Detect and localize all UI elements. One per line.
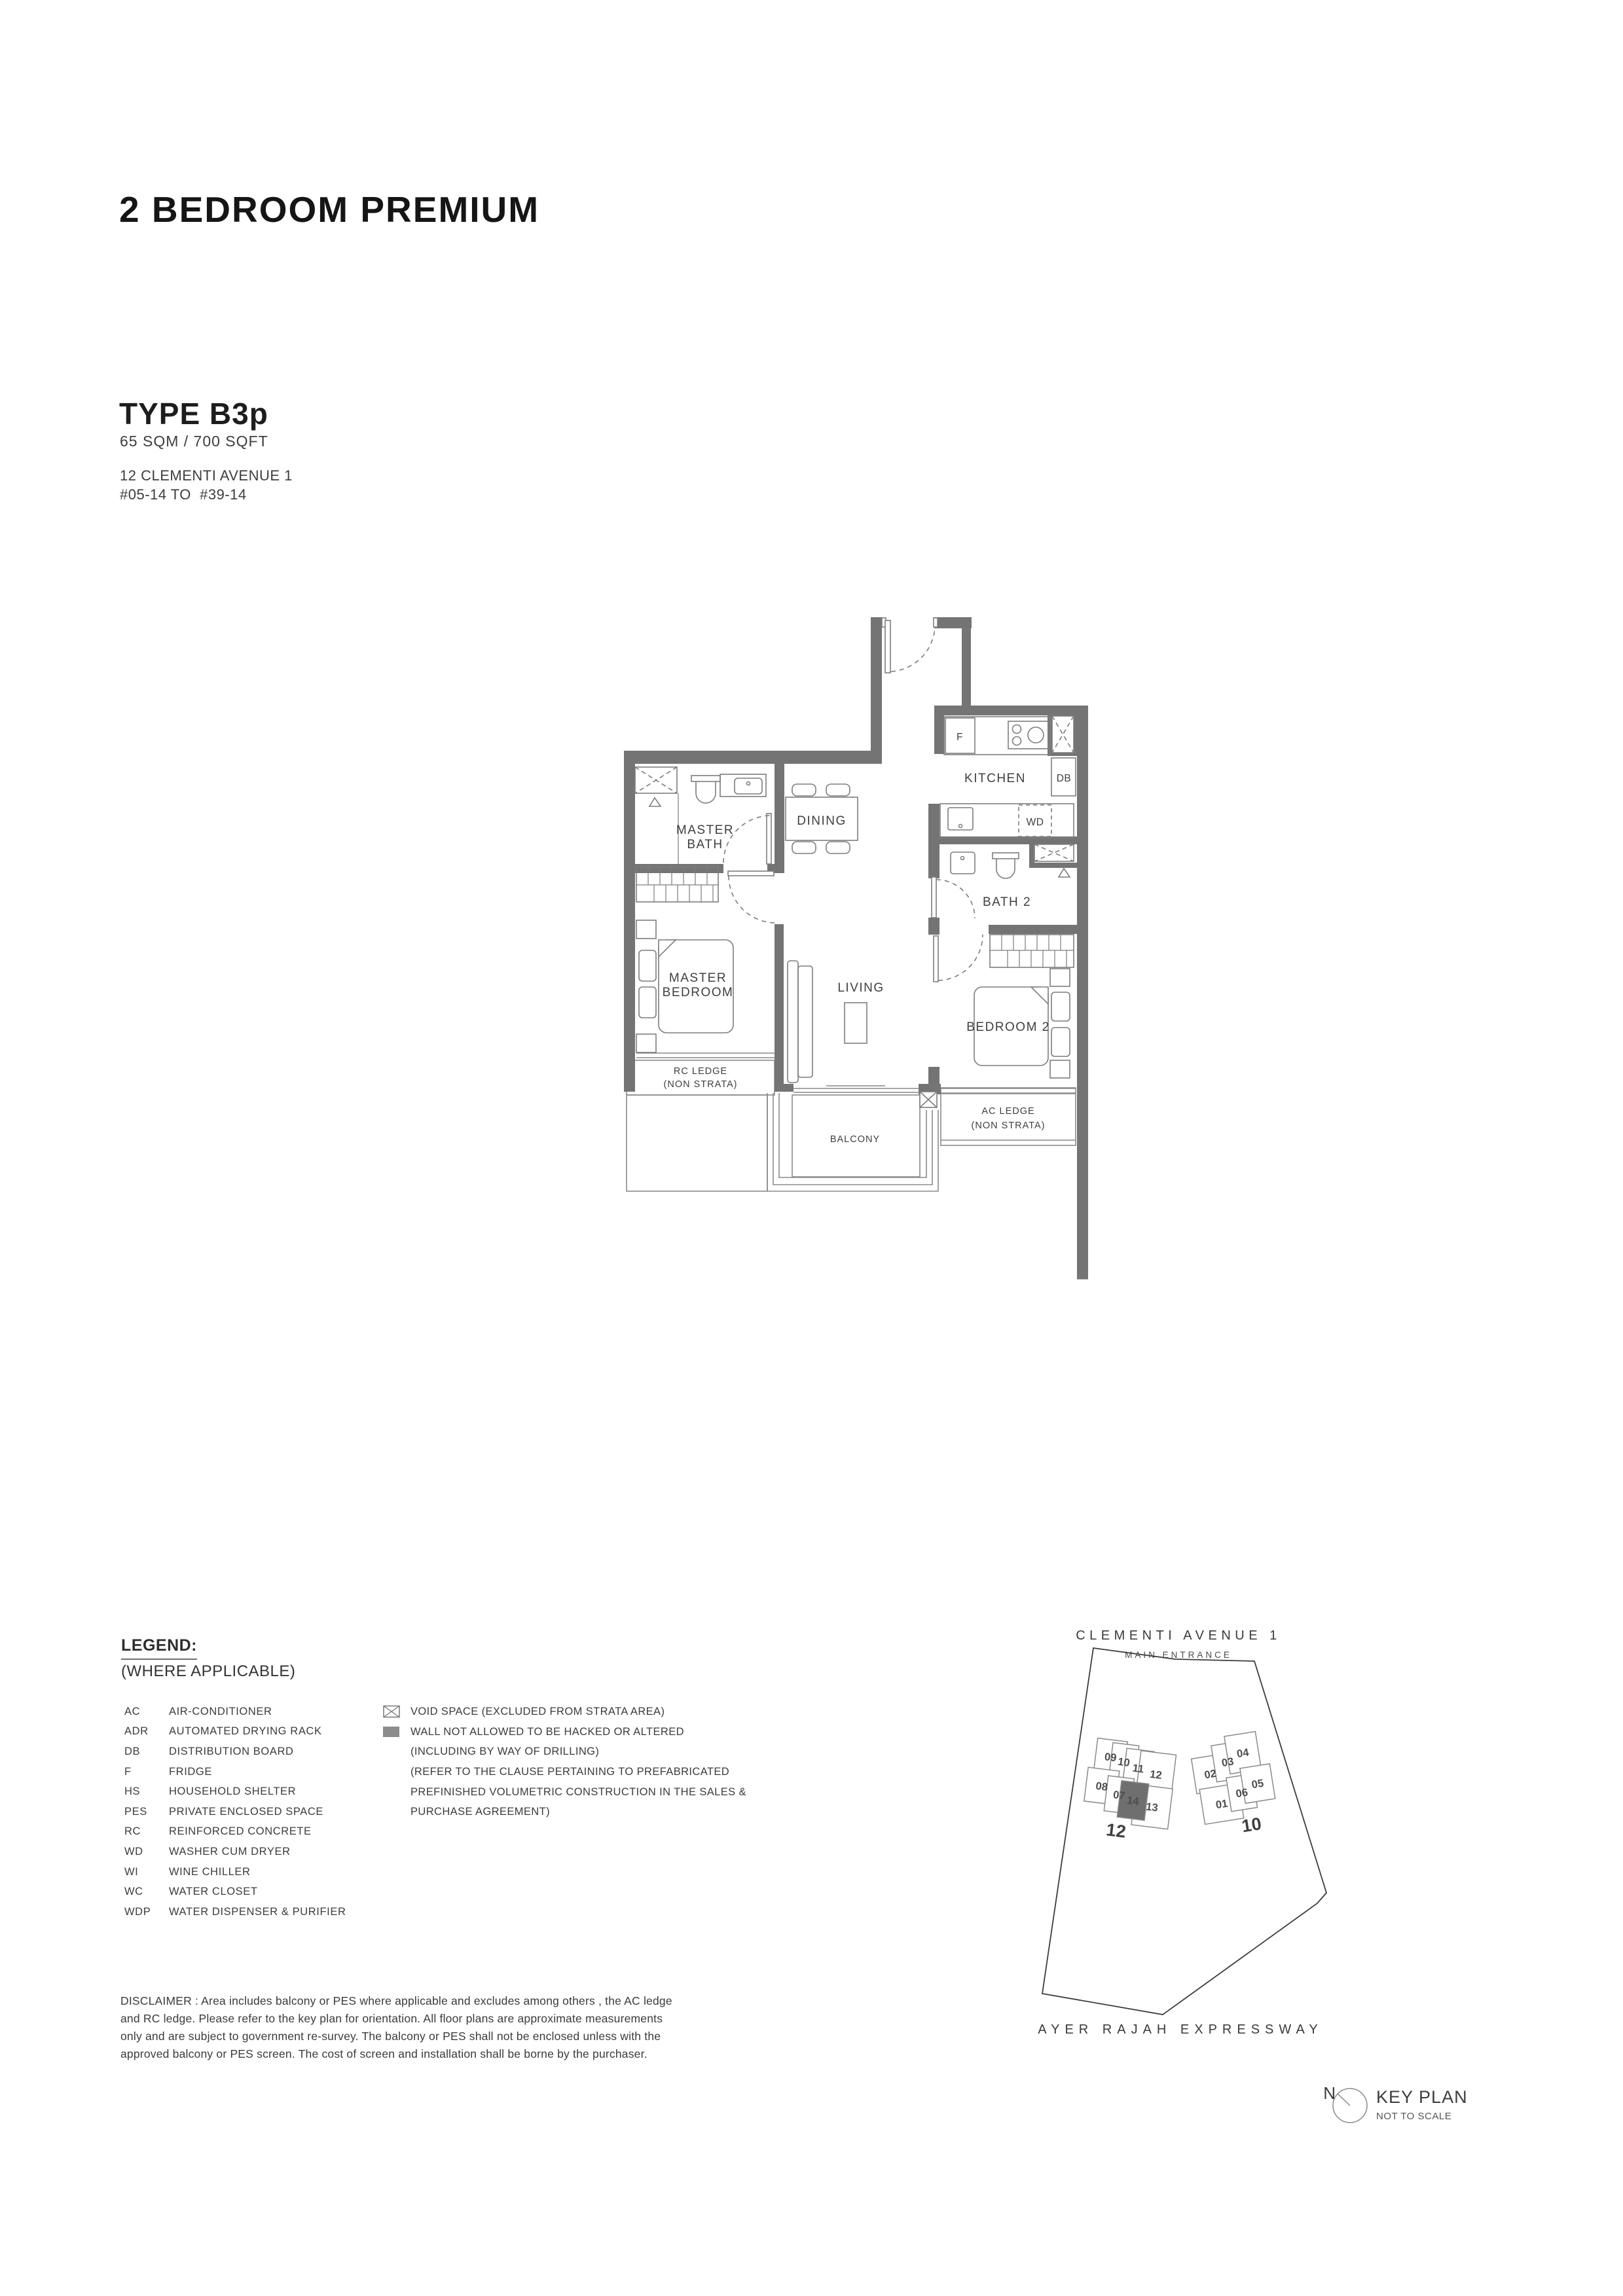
ac-ledge-area <box>941 1088 1076 1145</box>
unit-label: 13 <box>1145 1801 1158 1814</box>
door-swing <box>936 880 975 918</box>
label-balcony: BALCONY <box>830 1134 880 1145</box>
disclaimer-line: approved balcony or PES screen. The cost… <box>120 2045 841 2063</box>
wall-bedroom2-top <box>989 925 1077 934</box>
legend-label: REINFORCED CONCRETE <box>169 1825 312 1838</box>
road-label-bottom: AYER RAJAH EXPRESSWAY <box>1038 2022 1322 2037</box>
bedside-table <box>1050 969 1070 986</box>
legend-label: DISTRIBUTION BOARD <box>169 1746 293 1758</box>
living-furniture <box>788 961 867 1083</box>
legend-item: ADRAUTOMATED DRYING RACK <box>124 1722 373 1742</box>
bedside-table <box>636 1034 656 1052</box>
wall-foyer-left <box>871 617 882 764</box>
legend-abbr: WD <box>124 1846 169 1858</box>
pillow <box>1051 1028 1070 1056</box>
legend-item: PESPRIVATE ENCLOSED SPACE <box>124 1802 373 1822</box>
unit-address: 12 CLEMENTI AVENUE 1#05-14 TO #39-14 <box>120 466 293 504</box>
void-acledge <box>920 1092 937 1107</box>
unit-label: 02 <box>1203 1768 1217 1782</box>
keyplan-subtitle: NOT TO SCALE <box>1376 2111 1451 2122</box>
legend-label: AIR-CONDITIONER <box>169 1706 272 1718</box>
legend-abbr: AC <box>124 1706 169 1718</box>
unit-label: 01 <box>1215 1798 1229 1812</box>
wall-shaft-bottom <box>1029 863 1077 868</box>
unit-type-label: TYPE B3p <box>119 396 268 431</box>
room-labels: KITCHEN DB F WD DINING MASTER BATH BATH … <box>663 732 1072 1145</box>
unit-label: 07 <box>1112 1789 1125 1802</box>
unit-label: 12 <box>1149 1768 1162 1782</box>
door-leaf <box>932 877 936 918</box>
coffee-table <box>845 1003 867 1043</box>
legend-item: WIWINE CHILLER <box>124 1862 373 1882</box>
legend-abbr: RC <box>124 1825 169 1838</box>
unit-label: 08 <box>1095 1780 1108 1793</box>
legend-abbr: WC <box>124 1886 169 1898</box>
rc-ledge-extension <box>627 1095 767 1191</box>
wall-right-outer <box>1077 706 1088 1279</box>
legend-abbr: HS <box>124 1785 169 1798</box>
label-bedroom2: BEDROOM 2 <box>966 1020 1050 1034</box>
wall-bath-dining <box>775 751 784 865</box>
block-12: 09 10 11 12 08 07 14 13 12 <box>1080 1738 1178 1847</box>
legend-item: ACAIR-CONDITIONER <box>124 1702 373 1722</box>
toilet-icon <box>996 859 1015 878</box>
legend-label: WATER DISPENSER & PURIFIER <box>169 1906 346 1918</box>
wall-masterbed-right <box>775 924 784 1086</box>
chair <box>792 842 816 853</box>
legend-item: WDWASHER CUM DRYER <box>124 1842 373 1862</box>
door-leaf <box>767 814 771 864</box>
block-10: 02 03 04 01 06 05 10 <box>1189 1730 1281 1842</box>
legend-item: FFRIDGE <box>124 1762 373 1782</box>
legend-symbol-wall-cont: (REFER TO THE CLAUSE PERTAINING TO PREFA… <box>383 1762 802 1782</box>
legend-symbol-wall-cont: PURCHASE AGREEMENT) <box>383 1802 802 1822</box>
chair <box>792 784 816 796</box>
bedroom2-door <box>934 935 983 982</box>
unit-label: 09 <box>1104 1751 1117 1764</box>
chair <box>826 784 850 796</box>
key-plan: CLEMENTI AVENUE 1 MAIN ENTRANCE 09 10 11… <box>1021 1597 1388 2042</box>
masterbedroom-door <box>728 871 776 923</box>
address-line2: #05-14 TO #39-14 <box>120 486 247 503</box>
keyplan-title: KEY PLAN <box>1376 2087 1468 2107</box>
label-rcledge-1: RC LEDGE <box>674 1066 727 1077</box>
legend-label: WINE CHILLER <box>169 1866 251 1878</box>
legend-item: RCREINFORCED CONCRETE <box>124 1822 373 1842</box>
legend-label: HOUSEHOLD SHELTER <box>169 1785 296 1798</box>
legend-abbr: F <box>124 1766 169 1778</box>
sofa-seat <box>798 966 812 1077</box>
unit-label: 04 <box>1236 1746 1250 1760</box>
legend-abbr: WI <box>124 1866 169 1878</box>
keyplan-caption: N KEY PLAN NOT TO SCALE <box>1303 2075 1499 2134</box>
legend-label: PRIVATE ENCLOSED SPACE <box>169 1806 323 1818</box>
sink-icon <box>951 852 975 874</box>
label-rcledge-2: (NON STRATA) <box>664 1079 738 1090</box>
unit-label-highlighted: 14 <box>1126 1795 1140 1808</box>
door-swing <box>723 816 771 863</box>
label-dining: DINING <box>797 814 847 828</box>
door-leaf <box>885 620 890 673</box>
label-masterbedroom-2: BEDROOM <box>663 986 734 999</box>
sink-icon <box>735 778 762 794</box>
toilet-icon <box>696 781 716 803</box>
legend-label: FRIDGE <box>169 1766 212 1778</box>
sofa-back <box>788 961 798 1083</box>
site-boundary <box>1042 1648 1326 2015</box>
disclaimer-line: only and are subject to government re-su… <box>120 2028 841 2045</box>
wall-west-top <box>624 751 882 764</box>
hack-wall-label-2: (INCLUDING BY WAY OF DRILLING) <box>410 1746 599 1758</box>
bedside-table <box>636 920 656 939</box>
entry-door <box>882 618 938 673</box>
wall-left-outer <box>624 751 635 1092</box>
label-wd: WD <box>1027 817 1044 828</box>
void-kitchen <box>1052 716 1074 753</box>
legend-symbol-void: VOID SPACE (EXCLUDED FROM STRATA AREA) <box>383 1702 802 1722</box>
hack-wall-icon <box>383 1727 410 1737</box>
label-db: DB <box>1057 773 1072 784</box>
disclaimer-line: DISCLAIMER : Area includes balcony or PE… <box>120 1992 841 2010</box>
legend-item: WDPWATER DISPENSER & PURIFIER <box>124 1902 373 1922</box>
label-fridge: F <box>957 732 963 743</box>
legend-abbr: WDP <box>124 1906 169 1918</box>
block-10-label: 10 <box>1240 1814 1262 1836</box>
floorplan-drawing: KITCHEN DB F WD DINING MASTER BATH BATH … <box>589 602 1113 1302</box>
pillow <box>1051 992 1070 1021</box>
bedroom2-furniture <box>974 935 1074 1078</box>
legend-label: WATER CLOSET <box>169 1886 258 1898</box>
legend-symbol-wall-cont: PREFINISHED VOLUMETRIC CONSTRUCTION IN T… <box>383 1782 802 1803</box>
label-masterbedroom-1: MASTER <box>669 971 727 985</box>
legend-list: ACAIR-CONDITIONER ADRAUTOMATED DRYING RA… <box>124 1702 373 1922</box>
hack-wall-label-3: (REFER TO THE CLAUSE PERTAINING TO PREFA… <box>410 1766 729 1778</box>
legend-item: HSHOUSEHOLD SHELTER <box>124 1782 373 1802</box>
label-masterbath-2: BATH <box>687 838 723 852</box>
block-12-label: 12 <box>1105 1820 1127 1841</box>
bedside-table <box>1050 1060 1070 1078</box>
void-space-icon <box>383 1705 410 1718</box>
road-label-top: CLEMENTI AVENUE 1 <box>1076 1628 1281 1643</box>
shower-marker-masterbath <box>649 798 661 806</box>
legend-heading-wrap: LEGEND: <box>121 1636 197 1655</box>
legend-heading: LEGEND: <box>121 1636 197 1660</box>
hack-wall-label-5: PURCHASE AGREEMENT) <box>410 1806 550 1818</box>
void-space-label: VOID SPACE (EXCLUDED FROM STRATA AREA) <box>410 1706 665 1718</box>
north-label: N <box>1323 2083 1336 2103</box>
legend-symbols: VOID SPACE (EXCLUDED FROM STRATA AREA) W… <box>383 1702 802 1822</box>
pillow <box>639 987 656 1018</box>
wall-masterbed-corner <box>775 1084 793 1092</box>
legend-abbr: DB <box>124 1746 169 1758</box>
door-leaf <box>934 936 938 982</box>
void-bath2 <box>1034 844 1074 861</box>
disclaimer-line: and RC ledge. Please refer to the key pl… <box>120 2010 841 2028</box>
legend-abbr: ADR <box>124 1725 169 1738</box>
legend-subheading: (WHERE APPLICABLE) <box>121 1662 295 1681</box>
sink-icon <box>948 808 973 830</box>
address-line1: 12 CLEMENTI AVENUE 1 <box>120 467 293 484</box>
bed-fold <box>1031 987 1048 1004</box>
legend-item: DBDISTRIBUTION BOARD <box>124 1742 373 1762</box>
hack-wall-label-1: WALL NOT ALLOWED TO BE HACKED OR ALTERED <box>410 1726 684 1738</box>
wall-foyer-right <box>962 617 971 715</box>
masterbedroom-furniture <box>636 867 733 1052</box>
door-leaf <box>728 871 774 876</box>
bed-fold <box>659 940 676 957</box>
unit-label: 06 <box>1235 1787 1249 1801</box>
page-title: 2 BEDROOM PREMIUM <box>119 188 539 230</box>
legend-label: AUTOMATED DRYING RACK <box>169 1725 322 1738</box>
door-swing <box>938 935 983 980</box>
unit-label: 03 <box>1221 1755 1235 1769</box>
service-counter <box>940 804 1074 838</box>
hack-wall-label-4: PREFINISHED VOLUMETRIC CONSTRUCTION IN T… <box>410 1786 746 1799</box>
wardrobe <box>990 935 1074 967</box>
legend-label: WASHER CUM DRYER <box>169 1846 291 1858</box>
label-acledge-2: (NON STRATA) <box>972 1121 1046 1131</box>
legend-symbol-wall: WALL NOT ALLOWED TO BE HACKED OR ALTERED <box>383 1722 802 1742</box>
unit-label: 05 <box>1250 1778 1264 1791</box>
label-masterbath-1: MASTER <box>676 823 734 837</box>
unit-area: 65 SQM / 700 SQFT <box>120 433 268 450</box>
wall-living-stub <box>928 1067 939 1086</box>
label-acledge-1: AC LEDGE <box>981 1106 1034 1117</box>
door-swing <box>729 876 776 923</box>
rc-ledge-area <box>627 1060 775 1095</box>
floorplan-brochure-page: { "header": { "title": "2 BEDROOM PREMIU… <box>0 0 1623 2296</box>
label-bath2: BATH 2 <box>983 895 1031 909</box>
wall-masterbath-bottom <box>624 864 723 873</box>
pillow <box>639 950 656 981</box>
disclaimer: DISCLAIMER : Area includes balcony or PE… <box>120 1992 841 2063</box>
void-masterbath <box>635 767 677 793</box>
unit-label: 10 <box>1117 1756 1130 1769</box>
wall-corridor-lower <box>928 918 939 935</box>
door-swing <box>891 627 935 672</box>
legend-abbr: PES <box>124 1806 169 1818</box>
unit-label: 11 <box>1132 1763 1145 1776</box>
label-living: LIVING <box>837 981 884 995</box>
legend-item: WCWATER CLOSET <box>124 1882 373 1902</box>
legend-symbol-wall-cont: (INCLUDING BY WAY OF DRILLING) <box>383 1742 802 1762</box>
shower-marker-bath2 <box>1059 869 1070 877</box>
label-kitchen: KITCHEN <box>964 772 1026 785</box>
chair <box>826 842 850 853</box>
